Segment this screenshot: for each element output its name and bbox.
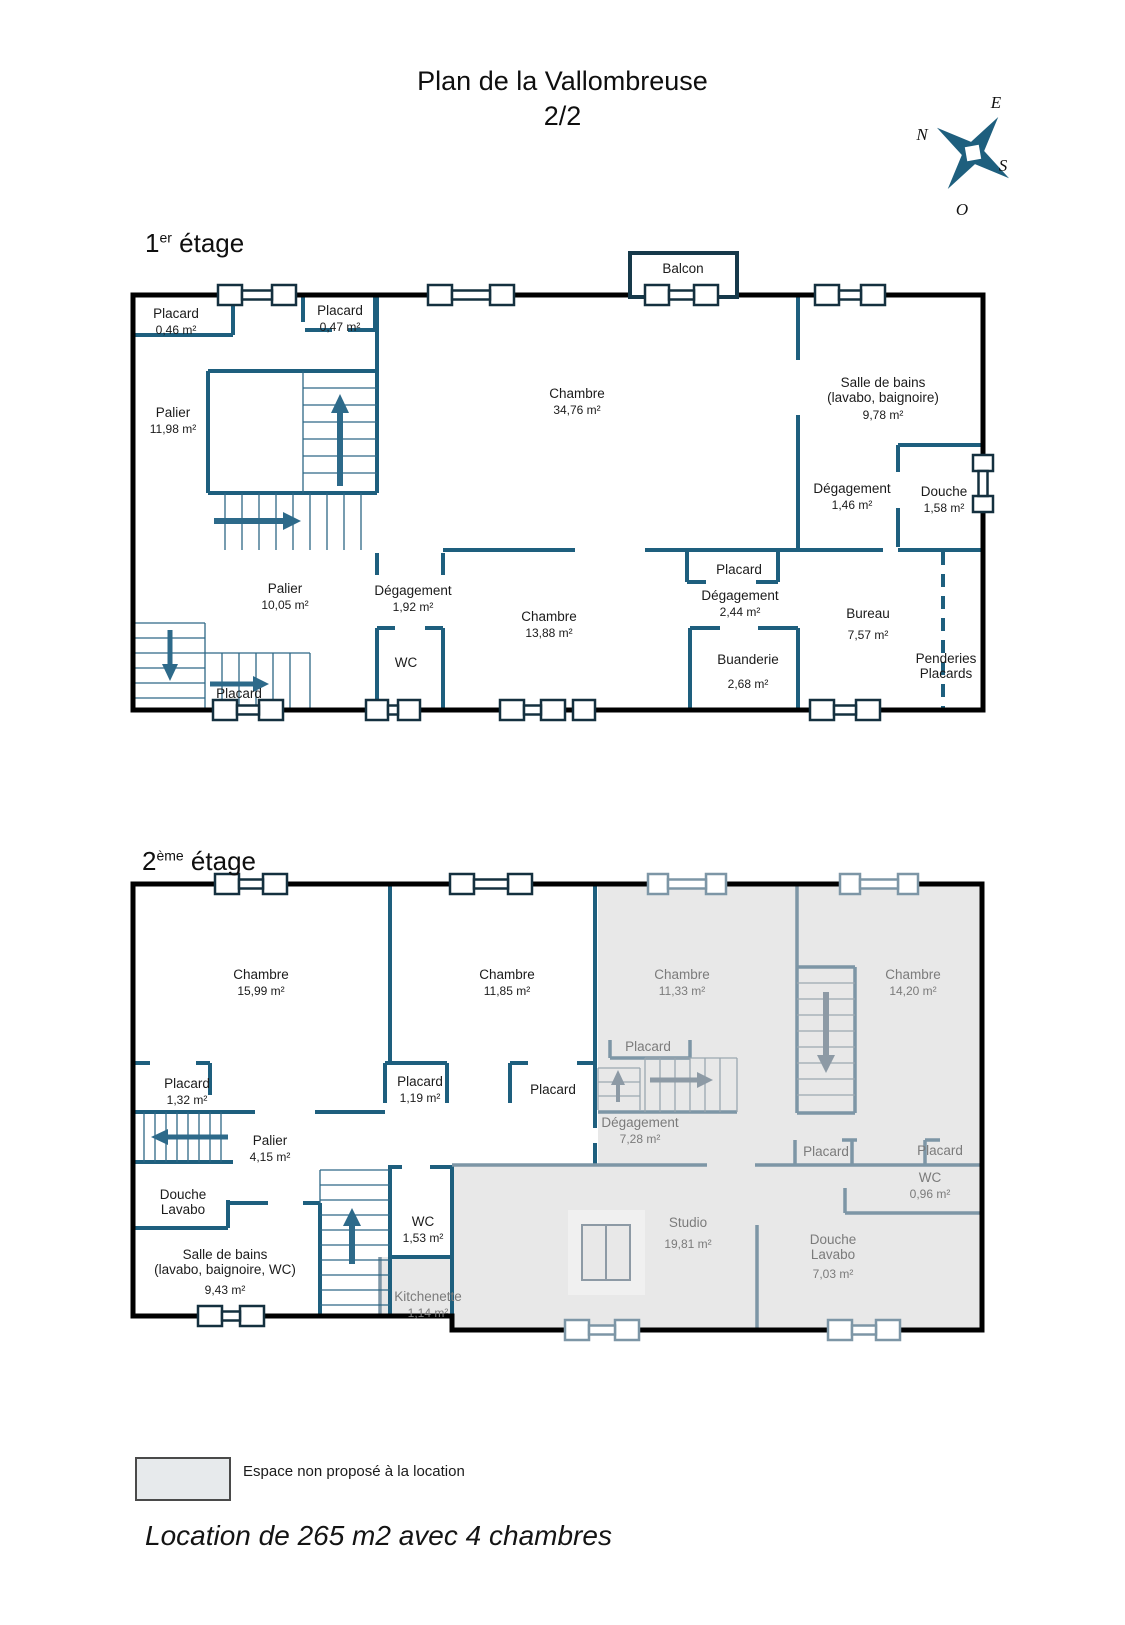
room-name: Palier (150, 405, 196, 420)
room-area: 1,32 m² (164, 1094, 210, 1108)
room-name: Salle de bains (lavabo, baignoire, WC) (154, 1247, 296, 1278)
room-area: 1,58 m² (921, 502, 968, 516)
room-name: Palier (250, 1133, 291, 1148)
room-label-degagement-728: Dégagement7,28 m² (601, 1115, 678, 1147)
room-label-douche-158: Douche1,58 m² (921, 484, 968, 516)
compass-label-n: N (916, 125, 927, 145)
room-name: Chambre (521, 609, 577, 624)
room-label-placard-corridor: Placard (716, 562, 762, 577)
room-label-chambre-1185: Chambre11,85 m² (479, 967, 535, 999)
room-name: WC (403, 1214, 444, 1229)
room-label-placard-132: Placard1,32 m² (164, 1076, 210, 1108)
room-label-douche-lavabo-droite: Douche Lavabo7,03 m² (810, 1232, 857, 1281)
room-name: Dégagement (813, 481, 890, 496)
room-area: 1,19 m² (397, 1092, 443, 1106)
room-name: Chambre (233, 967, 289, 982)
room-area: 11,33 m² (654, 985, 710, 999)
room-area: 2,44 m² (701, 606, 778, 620)
room-name: Dégagement (601, 1115, 678, 1130)
room-name: Chambre (885, 967, 941, 982)
room-label-placard-droite1: Placard (803, 1144, 849, 1159)
room-area: 4,15 m² (250, 1151, 291, 1165)
room-name: Placard (164, 1076, 210, 1091)
room-area: 13,88 m² (521, 627, 577, 641)
room-area: 2,68 m² (717, 678, 779, 692)
room-name: Placard (153, 306, 199, 321)
room-label-chambre-3476: Chambre34,76 m² (549, 386, 605, 418)
room-area: 10,05 m² (261, 599, 308, 613)
compass-label-e: E (991, 93, 1001, 113)
floor2-heading: 2ème étage (142, 846, 256, 877)
room-area: 19,81 m² (664, 1238, 711, 1252)
floor2-excluded-area (380, 884, 982, 1330)
footer-summary: Location de 265 m2 avec 4 chambres (145, 1520, 612, 1552)
room-label-chambre-1599: Chambre15,99 m² (233, 967, 289, 999)
room-name: Placard (397, 1074, 443, 1089)
room-name: Kitchenette (394, 1289, 462, 1304)
room-name: Buanderie (717, 652, 779, 667)
room-area: 9,43 m² (154, 1284, 296, 1298)
room-label-chambre-1388: Chambre13,88 m² (521, 609, 577, 641)
room-label-palier-415: Palier4,15 m² (250, 1133, 291, 1165)
room-label-palier-1198: Palier11,98 m² (150, 405, 196, 437)
room-area: 7,03 m² (810, 1268, 857, 1282)
room-label-penderies-placards: Penderies Placards (916, 651, 977, 682)
room-name: Douche (921, 484, 968, 499)
room-name: WC (910, 1170, 951, 1185)
floor1-heading: 1er étage (145, 228, 244, 259)
room-label-palier-1005: Palier10,05 m² (261, 581, 308, 613)
room-label-salle-de-bains-f1: Salle de bains (lavabo, baignoire)9,78 m… (827, 375, 939, 422)
room-name: Douche Lavabo (810, 1232, 857, 1263)
room-label-kitchenette: Kitchenette1,14 m² (394, 1289, 462, 1321)
room-label-placard-119: Placard1,19 m² (397, 1074, 443, 1106)
room-label-wc-153: WC1,53 m² (403, 1214, 444, 1246)
room-label-wc-f1: WC (395, 655, 418, 670)
page-title: Plan de la Vallombreuse 2/2 (0, 64, 1125, 134)
room-label-studio: Studio19,81 m² (664, 1215, 711, 1252)
room-area: 0,46 m² (153, 324, 199, 338)
room-name: Placard (917, 1143, 963, 1158)
page-title-line1: Plan de la Vallombreuse (0, 64, 1125, 99)
compass-label-s: S (999, 156, 1008, 176)
room-label-placard-gris: Placard (625, 1039, 671, 1054)
room-label-douche-lavabo-gauche: Douche Lavabo (160, 1187, 207, 1218)
room-label-placard-centre: Placard (530, 1082, 576, 1097)
room-name: Bureau (846, 606, 890, 621)
room-label-degagement-192: Dégagement1,92 m² (374, 583, 451, 615)
room-name: Dégagement (701, 588, 778, 603)
room-label-wc-096: WC0,96 m² (910, 1170, 951, 1202)
room-name: Balcon (662, 261, 703, 276)
page-title-line2: 2/2 (0, 99, 1125, 134)
room-label-chambre-1133: Chambre11,33 m² (654, 967, 710, 999)
room-name: Palier (261, 581, 308, 596)
room-label-buanderie: Buanderie2,68 m² (717, 652, 779, 692)
room-name: Placard (716, 562, 762, 577)
room-area: 11,98 m² (150, 423, 196, 437)
room-area: 7,57 m² (846, 629, 890, 643)
room-label-chambre-1420: Chambre14,20 m² (885, 967, 941, 999)
room-name: Penderies Placards (916, 651, 977, 682)
room-name: Dégagement (374, 583, 451, 598)
room-area: 1,53 m² (403, 1232, 444, 1246)
room-name: Placard (216, 686, 262, 701)
room-name: WC (395, 655, 418, 670)
room-label-degagement-146: Dégagement1,46 m² (813, 481, 890, 513)
room-name: Chambre (479, 967, 535, 982)
legend-excluded-swatch (135, 1457, 231, 1501)
room-name: Chambre (654, 967, 710, 982)
room-name: Chambre (549, 386, 605, 401)
room-name: Placard (530, 1082, 576, 1097)
room-label-placard-droite2: Placard (917, 1143, 963, 1158)
room-label-bureau: Bureau7,57 m² (846, 606, 890, 643)
legend-text: Espace non proposé à la location (243, 1463, 465, 1480)
room-area: 1,46 m² (813, 499, 890, 513)
room-area: 7,28 m² (601, 1133, 678, 1147)
room-name: Placard (625, 1039, 671, 1054)
room-area: 11,85 m² (479, 985, 535, 999)
room-name: Salle de bains (lavabo, baignoire) (827, 375, 939, 406)
floor-plan-page: Plan de la Vallombreuse 2/2 1er étage 2è… (0, 0, 1125, 1625)
room-name: Placard (317, 303, 363, 318)
room-label-placard-bas: Placard (216, 686, 262, 701)
room-label-degagement-244: Dégagement2,44 m² (701, 588, 778, 620)
room-name: Studio (664, 1215, 711, 1230)
room-area: 0,47 m² (317, 321, 363, 335)
room-area: 14,20 m² (885, 985, 941, 999)
room-label-placard-046: Placard0,46 m² (153, 306, 199, 338)
room-name: Placard (803, 1144, 849, 1159)
room-name: Douche Lavabo (160, 1187, 207, 1218)
room-area: 9,78 m² (827, 409, 939, 423)
room-label-salle-de-bains-f2: Salle de bains (lavabo, baignoire, WC)9,… (154, 1247, 296, 1297)
room-label-placard-047: Placard0,47 m² (317, 303, 363, 335)
room-area: 1,92 m² (374, 601, 451, 615)
room-label-balcon: Balcon (662, 261, 703, 276)
room-area: 0,96 m² (910, 1188, 951, 1202)
room-area: 1,14 m² (394, 1307, 462, 1321)
room-area: 34,76 m² (549, 404, 605, 418)
compass-label-o: O (956, 200, 968, 220)
room-area: 15,99 m² (233, 985, 289, 999)
